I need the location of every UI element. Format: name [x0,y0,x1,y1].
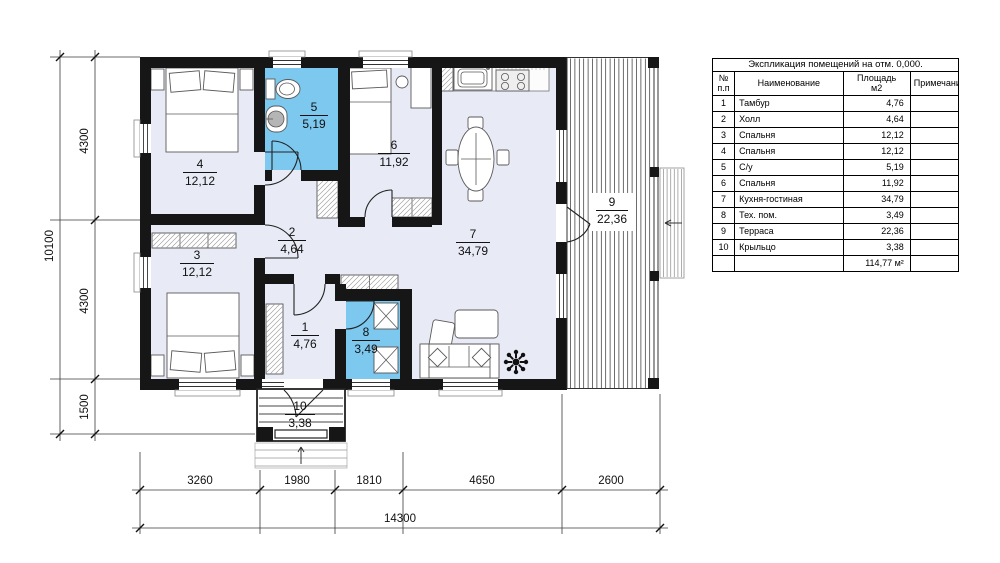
terrace-stairs-icon [660,168,684,278]
window [556,274,567,318]
terrace-post [648,378,659,389]
cell-note [910,112,958,128]
window [443,379,498,390]
header-num: №п.п [713,72,735,96]
cell-name [735,256,843,272]
cell-note [910,176,958,192]
cell-area: 3,38 [843,240,910,256]
cell-name: С/у [735,160,843,176]
header-area-line1: Площадь [857,73,896,83]
svg-text:5: 5 [311,100,318,114]
dimension-labels-left: 4300 4300 1500 10100 [44,128,91,420]
single-bed-icon [349,68,391,154]
table-row: 6Спальня11,92 [713,176,959,192]
porch-lower-steps [255,443,347,468]
window [140,257,151,288]
cell-name: Тамбур [735,96,843,112]
cell-area: 34,79 [843,192,910,208]
header-name: Наименование [735,72,843,96]
cell-name: Спальня [735,128,843,144]
svg-text:4300: 4300 [79,128,91,154]
cell-area: 5,19 [843,160,910,176]
cell-area: 22,36 [843,224,910,240]
table-row: 1Тамбур4,76 [713,96,959,112]
cell-num: 1 [713,96,735,112]
cell-area: 3,49 [843,208,910,224]
svg-text:3260: 3260 [187,475,213,487]
svg-text:12,12: 12,12 [182,265,212,279]
cell-note [910,192,958,208]
header-area-line2: м2 [871,83,882,93]
cell-num: 3 [713,128,735,144]
stove-icon [496,70,529,91]
cell-num: 2 [713,112,735,128]
svg-text:11,92: 11,92 [379,155,408,169]
table-row: 9Терраса22,36 [713,224,959,240]
closet-icon [392,198,432,217]
table-row: 3Спальня12,12 [713,128,959,144]
coffee-table-icon [455,310,498,338]
plant-icon [504,350,528,374]
cell-num: 7 [713,192,735,208]
wardrobe-icon [266,304,283,374]
closet-icon [341,275,398,290]
cell-area: 11,92 [843,176,910,192]
header-area: Площадьм2 [843,72,910,96]
table-row: 10Крыльцо3,38 [713,240,959,256]
svg-text:34,79: 34,79 [458,244,488,258]
svg-text:7: 7 [470,227,477,241]
terrace-post [648,57,659,68]
terrace-post [650,167,659,177]
cell-name: Крыльцо [735,240,843,256]
svg-text:6: 6 [391,138,398,152]
svg-text:3,49: 3,49 [354,342,378,356]
svg-text:22,36: 22,36 [597,212,627,226]
cell-num: 8 [713,208,735,224]
double-bed-icon [167,293,239,378]
cell-area: 12,12 [843,144,910,160]
table-row: 4Спальня12,12 [713,144,959,160]
cell-note [910,256,958,272]
header-num-line1: № [719,73,729,83]
svg-text:1980: 1980 [284,475,310,487]
table-row: 8Тех. пом.3,49 [713,208,959,224]
table-title-row: Экспликация помещений на отм. 0,000. [713,59,959,72]
table-total-row: 114,77 м² [713,256,959,272]
window [352,379,390,390]
window [273,57,301,68]
terrace-post [650,271,659,281]
window [179,379,236,390]
table-row: 7Кухня-гостиная34,79 [713,192,959,208]
kitchen-sink-icon [454,66,492,90]
sink-icon [266,106,287,132]
boiler-icon [374,303,398,329]
explication-table: Экспликация помещений на отм. 0,000. №п.… [712,58,959,272]
svg-text:1500: 1500 [79,394,91,420]
svg-text:9: 9 [609,195,616,209]
svg-text:8: 8 [363,325,370,339]
window [140,124,151,153]
cell-num: 5 [713,160,735,176]
cell-name: Тех. пом. [735,208,843,224]
svg-text:2600: 2600 [598,475,624,487]
total-area-cell: 114,77 м² [843,256,910,272]
cell-num: 9 [713,224,735,240]
double-bed-icon [166,68,238,152]
table-header-row: №п.п Наименование Площадьм2 Примечание [713,72,959,96]
svg-text:2: 2 [289,225,296,239]
svg-text:1810: 1810 [356,475,382,487]
cell-note [910,160,958,176]
closet-icon [317,178,338,218]
svg-text:14300: 14300 [384,513,416,525]
dimension-labels-bottom: 3260 1980 1810 4650 2600 14300 [187,475,624,525]
cell-note [910,208,958,224]
svg-text:1: 1 [302,320,309,334]
svg-text:3: 3 [194,248,201,262]
cell-name: Терраса [735,224,843,240]
fridge-icon [441,64,453,91]
svg-text:4: 4 [197,157,204,171]
window [556,130,567,182]
svg-text:4,76: 4,76 [293,337,317,351]
svg-text:5,19: 5,19 [302,117,326,131]
window [363,57,408,68]
floorplan-page: 1 4,76 2 4,64 3 12,12 4 12,12 5 5,19 6 1… [0,0,1000,563]
cell-num: 6 [713,176,735,192]
cell-area: 12,12 [843,128,910,144]
svg-text:4,64: 4,64 [280,242,304,256]
cell-name: Холл [735,112,843,128]
cell-num: 4 [713,144,735,160]
table-title: Экспликация помещений на отм. 0,000. [713,59,959,72]
cell-note [910,96,958,112]
svg-text:3,38: 3,38 [288,416,312,430]
svg-text:12,12: 12,12 [185,174,215,188]
header-num-line2: п.п [717,83,729,93]
cell-name: Спальня [735,176,843,192]
cell-num: 10 [713,240,735,256]
svg-text:4300: 4300 [79,288,91,314]
cell-name: Спальня [735,144,843,160]
table-row: 2Холл4,64 [713,112,959,128]
svg-text:10: 10 [293,399,307,413]
toilet-icon [266,79,300,99]
cell-area: 4,64 [843,112,910,128]
cell-note [910,240,958,256]
cell-note [910,128,958,144]
wardrobe-icon [152,233,236,248]
cell-note [910,144,958,160]
svg-text:10100: 10100 [44,230,56,262]
cell-note [910,224,958,240]
cell-num [713,256,735,272]
sofa-icon [420,344,499,378]
header-note: Примечание [910,72,958,96]
cell-area: 4,76 [843,96,910,112]
table-row: 5С/у5,19 [713,160,959,176]
explication-grid: Экспликация помещений на отм. 0,000. №п.… [712,58,959,272]
cell-name: Кухня-гостиная [735,192,843,208]
svg-text:4650: 4650 [469,475,495,487]
